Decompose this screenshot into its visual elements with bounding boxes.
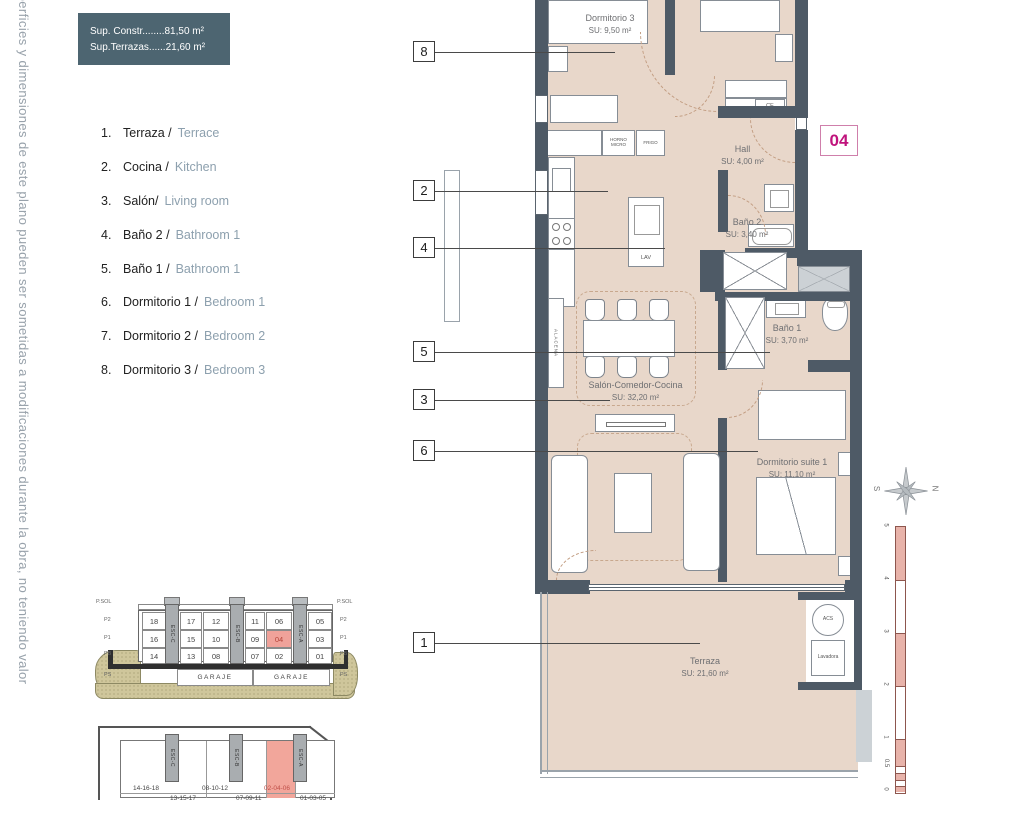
legend-item-terraza: 1.Terraza /Terrace <box>101 126 219 140</box>
wall <box>700 250 725 292</box>
terrace-edge-left <box>540 592 548 774</box>
legend-item-bano1: 5.Baño 1 /Bathroom 1 <box>101 262 240 276</box>
room-name: Terraza <box>650 655 760 668</box>
sliding-window <box>588 584 845 591</box>
blockplan-group-label: 01-03-05 <box>300 795 326 802</box>
legend-num: 2. <box>101 160 117 174</box>
utility-closet-wall <box>798 682 862 690</box>
section-unit: 14 <box>142 648 166 664</box>
legend-item-salon: 3.Salón/Living room <box>101 194 229 208</box>
pantry-alacena: ALACENA <box>548 298 564 388</box>
chair <box>649 299 669 321</box>
wall <box>808 360 860 372</box>
section-unit: 13 <box>180 648 202 664</box>
wall <box>850 250 862 592</box>
sofa <box>683 453 720 571</box>
section-unit: 17 <box>180 612 202 630</box>
wall <box>845 580 862 592</box>
scale-seg <box>896 633 905 686</box>
scale-tick-05: 0.5 <box>883 759 889 767</box>
floorplan-page: { "disclaimer": "uperficies y dimensione… <box>0 0 1024 800</box>
section-unit: 08 <box>203 648 229 664</box>
utility-closet-wall <box>798 592 862 600</box>
legend-es: Terraza / <box>123 126 172 140</box>
tv <box>606 422 666 427</box>
legend-num: 7. <box>101 329 117 343</box>
legend-es: Cocina / <box>123 160 169 174</box>
room-name: Hall <box>695 143 790 156</box>
room-area: SU: 9,50 m² <box>555 25 665 36</box>
blockplan-outline-top <box>98 726 311 728</box>
bed-suite <box>756 477 836 555</box>
tv-unit <box>595 414 675 432</box>
water-heater: ACS <box>812 604 844 636</box>
section-unit: 01 <box>308 648 332 664</box>
garage-cell: GARAJE <box>177 669 253 686</box>
chair <box>585 299 605 321</box>
acs-label: ACS <box>823 617 833 623</box>
shower-tray <box>798 266 850 292</box>
blockplan-line <box>120 793 335 794</box>
room-label-dormitorio3: Dormitorio 3SU: 9,50 m² <box>555 12 665 36</box>
cooktop <box>548 218 575 250</box>
kitchen-sink <box>552 168 571 192</box>
surface-info-box: Sup. Constr........81,50 m² Sup.Terrazas… <box>78 13 230 65</box>
room-name: Salón-Comedor-Cocina <box>573 379 698 392</box>
blockplan-stair-esc-b: ESC-B <box>229 734 243 782</box>
section-left-label: PB <box>104 651 111 657</box>
fridge: FRIGO <box>636 130 665 156</box>
scale-seg <box>896 739 905 766</box>
leader-line <box>435 248 665 249</box>
room-area: SU: 4,00 m² <box>695 156 790 167</box>
blockplan-outline-left <box>98 726 100 800</box>
door-arc <box>640 32 718 112</box>
chair <box>649 356 669 378</box>
burner <box>552 223 560 231</box>
door-arc <box>727 380 763 418</box>
room-area: SU: 3,70 m² <box>740 335 834 346</box>
room-label-bano2: Baño 2SU: 3,40 m² <box>700 216 794 240</box>
legend-item-dorm3: 8.Dormitorio 3 /Bedroom 3 <box>101 363 265 377</box>
wall <box>535 123 548 170</box>
legend-es: Baño 1 / <box>123 262 170 276</box>
wall <box>535 215 548 582</box>
chair <box>617 356 637 378</box>
callout-6: 6 <box>413 440 435 461</box>
nightstand <box>775 34 793 62</box>
stair-label: ESC-C <box>169 749 175 767</box>
callout-5: 5 <box>413 341 435 362</box>
scale-seg <box>896 766 905 773</box>
kitchen-cabinet <box>545 130 602 156</box>
section-right-label: PS <box>340 672 347 678</box>
wardrobe <box>723 252 787 290</box>
scale-tick-4: 4 <box>883 576 889 579</box>
blockplan-stair-esc-c: ESC-C <box>165 734 179 782</box>
leader-line <box>435 643 700 644</box>
legend-num: 4. <box>101 228 117 242</box>
bed-dormitorio2 <box>700 0 780 32</box>
scale-seg <box>896 786 905 792</box>
section-unit: 11 <box>245 612 265 630</box>
bathroom2-sink <box>764 184 794 212</box>
legend-item-dorm2: 7.Dormitorio 2 /Bedroom 2 <box>101 329 265 343</box>
section-unit: 16 <box>142 630 166 648</box>
garage-cell: GARAJE <box>253 669 330 686</box>
legend-es: Dormitorio 3 / <box>123 363 198 377</box>
leader-line <box>435 400 610 401</box>
legend-en: Bathroom 1 <box>176 228 241 242</box>
section-unit: 18 <box>142 612 166 630</box>
legend-num: 6. <box>101 295 117 309</box>
scale-tick-0: 0 <box>883 787 889 790</box>
stair-label: ESC-B <box>233 749 239 767</box>
wall <box>795 0 808 115</box>
legend-en: Bedroom 2 <box>204 329 265 343</box>
legend-num: 1. <box>101 126 117 140</box>
burner <box>563 223 571 231</box>
burner <box>552 237 560 245</box>
exterior-ledge <box>444 170 460 322</box>
callout-8: 8 <box>413 41 435 62</box>
callout-3: 3 <box>413 389 435 410</box>
compass-east-label: N <box>930 486 939 492</box>
legend-es: Dormitorio 2 / <box>123 329 198 343</box>
scale-tick-2: 2 <box>883 682 889 685</box>
coffee-table <box>614 473 652 533</box>
scale-bar: 5 4 3 2 1 0.5 0 <box>884 524 908 798</box>
scale-seg <box>896 773 905 780</box>
legend-es: Dormitorio 1 / <box>123 295 198 309</box>
oven-microwave: HORNO MICRO <box>602 130 635 156</box>
room-label-suite: Dormitorio suite 1SU: 11,10 m² <box>736 456 848 480</box>
dishwasher: LAV <box>628 197 664 267</box>
compass-west-label: S <box>872 486 881 491</box>
legend-es: Baño 2 / <box>123 228 170 242</box>
stair-shaft-esc-c: ESC-C <box>165 604 179 664</box>
utility-closet-wall <box>854 592 862 690</box>
leader-line <box>435 52 615 53</box>
room-area: SU: 11,10 m² <box>736 469 848 480</box>
legend-item-dorm1: 6.Dormitorio 1 /Bedroom 1 <box>101 295 265 309</box>
window <box>535 170 548 215</box>
room-area: SU: 32,20 m² <box>573 392 698 403</box>
bed-dormitorio1 <box>758 390 846 440</box>
lavadora-label: Lavadora <box>818 655 839 661</box>
leader-line <box>435 191 608 192</box>
window-rail <box>589 587 844 588</box>
scale-tick-3: 3 <box>883 629 889 632</box>
dishwasher-inner <box>634 205 660 235</box>
terrace-edge-bottom <box>540 770 858 778</box>
legend-es: Salón/ <box>123 194 158 208</box>
section-unit: 02 <box>266 648 292 664</box>
blockplan-group-label: 07-09-11 <box>236 795 262 802</box>
room-name: Baño 1 <box>740 322 834 335</box>
bathroom1-sink <box>766 298 806 318</box>
wall <box>795 130 808 255</box>
legend-item-bano2: 4.Baño 2 /Bathroom 1 <box>101 228 240 242</box>
callout-4: 4 <box>413 237 435 258</box>
room-label-terraza: TerrazaSU: 21,60 m² <box>650 655 760 679</box>
callout-2: 2 <box>413 180 435 201</box>
basin <box>770 190 789 208</box>
legend-en: Bedroom 1 <box>204 295 265 309</box>
room-name: Dormitorio suite 1 <box>736 456 848 469</box>
legend-num: 8. <box>101 363 117 377</box>
chair <box>617 299 637 321</box>
wall <box>535 0 548 95</box>
scale-tick-5: 5 <box>883 523 889 526</box>
blockplan-group-label: 14-16-18 <box>133 785 159 792</box>
wall <box>718 106 808 118</box>
closet-dormitorio3 <box>550 95 618 123</box>
section-unit: 06 <box>266 612 292 630</box>
toilet-tank <box>827 301 845 308</box>
stair-label: ESC-C <box>169 625 175 643</box>
fridge-label: FRIGO <box>643 141 657 146</box>
closet-shelf <box>725 80 787 98</box>
scale-bar-body <box>895 526 906 794</box>
neighbor-wall <box>856 690 872 762</box>
stair-label: ESC-A <box>297 625 303 643</box>
section-left-label: P2 <box>104 617 111 623</box>
blockplan-stair-esc-a: ESC-A <box>293 734 307 782</box>
room-name: Baño 2 <box>700 216 794 229</box>
oven-label: HORNO MICRO <box>603 138 634 148</box>
basin <box>775 303 799 315</box>
legend-en: Bathroom 1 <box>176 262 241 276</box>
door-arc <box>556 550 596 580</box>
unit-number-badge: 04 <box>820 125 858 156</box>
section-left-label: PS <box>104 672 111 678</box>
sup-constr-line: Sup. Constr........81,50 m² <box>90 24 230 40</box>
scale-seg <box>896 527 905 580</box>
legend-en: Living room <box>164 194 229 208</box>
window <box>535 95 548 123</box>
legend-item-cocina: 2.Cocina /Kitchen <box>101 160 217 174</box>
stair-label: ESC-A <box>297 749 303 767</box>
section-left-label: P.SOL <box>96 599 112 605</box>
legend-en: Kitchen <box>175 160 217 174</box>
section-unit: 12 <box>203 612 229 630</box>
sup-terrazas-line: Sup.Terrazas......21,60 m² <box>90 40 230 56</box>
section-unit: 05 <box>308 612 332 630</box>
room-area: SU: 21,60 m² <box>650 668 760 679</box>
blockplan-group-label: 08-10-12 <box>202 785 228 792</box>
legend-num: 5. <box>101 262 117 276</box>
burner <box>563 237 571 245</box>
section-unit: 10 <box>203 630 229 648</box>
legend-num: 3. <box>101 194 117 208</box>
room-area: SU: 3,40 m² <box>700 229 794 240</box>
stair-shaft-esc-a: ESC-A <box>293 604 307 664</box>
lav-label: LAV <box>629 255 663 261</box>
legend-en: Terrace <box>178 126 220 140</box>
scale-tick-1: 1 <box>883 735 889 738</box>
section-right-label: PB <box>340 651 347 657</box>
callout-1: 1 <box>413 632 435 653</box>
section-unit: 09 <box>245 630 265 648</box>
scale-seg <box>896 580 905 633</box>
compass-rose <box>882 462 930 520</box>
compass-star <box>882 462 930 520</box>
section-right-label: P.SOL <box>337 599 353 605</box>
stair-label: ESC-B <box>234 625 240 643</box>
room-label-hall: HallSU: 4,00 m² <box>695 143 790 167</box>
leader-line <box>435 352 770 353</box>
section-unit: 15 <box>180 630 202 648</box>
chair <box>585 356 605 378</box>
washing-machine: Lavadora <box>811 640 845 676</box>
section-unit: 03 <box>308 630 332 648</box>
blockplan-group-label-highlighted: 02-04-06 <box>264 785 290 792</box>
legend-en: Bedroom 3 <box>204 363 265 377</box>
stair-shaft-esc-b: ESC-B <box>230 604 244 664</box>
nightstand <box>548 46 568 72</box>
room-name: Dormitorio 3 <box>555 12 665 25</box>
section-right-label: P1 <box>340 635 347 641</box>
scale-seg <box>896 686 905 739</box>
section-unit-highlighted: 04 <box>266 630 292 648</box>
blockplan-group-label: 13-15-17 <box>170 795 196 802</box>
vertical-disclaimer: uperficies y dimensiones de este plano p… <box>16 0 31 816</box>
room-label-bano1: Baño 1SU: 3,70 m² <box>740 322 834 346</box>
section-left-label: P1 <box>104 635 111 641</box>
section-unit: 07 <box>245 648 265 664</box>
section-right-label: P2 <box>340 617 347 623</box>
leader-line <box>435 451 758 452</box>
